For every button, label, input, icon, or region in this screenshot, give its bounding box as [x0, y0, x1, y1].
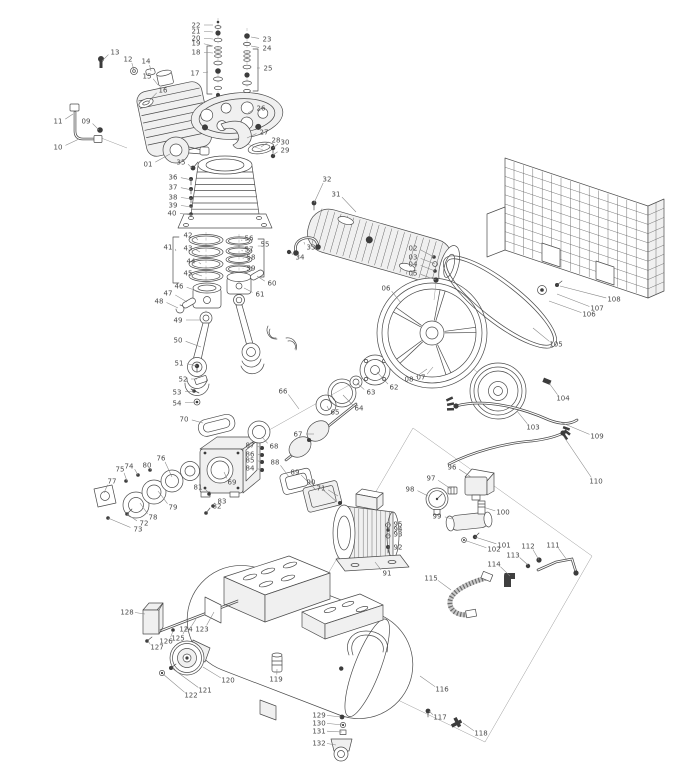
part-label-09: 09: [82, 117, 91, 125]
part-label-49: 49: [174, 316, 183, 324]
part-bolt-32: [312, 201, 317, 210]
part-label-83: 83: [218, 497, 227, 505]
part-label-42: 42: [184, 231, 193, 239]
part-label-46: 46: [175, 282, 184, 290]
part-leader-129: [327, 715, 341, 717]
part-leader-104: [549, 383, 558, 395]
part-label-74: 74: [125, 462, 134, 470]
part-leader-115: [438, 580, 451, 590]
part-leader-20: [204, 38, 213, 39]
part-label-02: 02: [409, 244, 418, 252]
diagram-canvas: 0102030405060708091011121314151617181920…: [0, 0, 686, 768]
part-label-28: 28: [272, 136, 281, 144]
part-label-100: 100: [496, 508, 509, 516]
part-motor-pulley-103: [470, 363, 551, 419]
part-leader-106: [549, 301, 581, 313]
part-leader-31: [342, 197, 356, 212]
part-label-123: 123: [195, 625, 208, 633]
part-label-36: 36: [169, 173, 178, 181]
part-leader-23: [251, 37, 259, 38]
part-label-79: 79: [169, 503, 178, 511]
part-leader-42: [195, 237, 198, 240]
part-leader-47: [175, 295, 187, 302]
part-label-99: 99: [433, 512, 442, 520]
part-bearing-68: [248, 421, 270, 443]
part-leader-98: [417, 491, 428, 496]
part-label-55: 55: [261, 240, 270, 248]
part-label-29: 29: [281, 146, 290, 154]
part-label-62: 62: [390, 383, 399, 391]
part-label-01: 01: [144, 160, 153, 168]
part-label-88: 88: [271, 458, 280, 466]
part-label-44: 44: [187, 257, 196, 265]
part-leader-110: [564, 437, 591, 477]
part-leader-34: [291, 252, 293, 255]
part-label-89: 89: [291, 468, 300, 476]
part-label-06: 06: [382, 284, 391, 292]
part-label-11: 11: [54, 117, 63, 125]
part-leader-29: [273, 152, 278, 155]
bracket-41: [173, 237, 179, 283]
part-label-81: 81: [194, 483, 203, 491]
part-label-69: 69: [228, 478, 237, 486]
part-label-14: 14: [142, 57, 151, 65]
part-label-31: 31: [332, 190, 341, 198]
part-wheel-120: [170, 641, 204, 675]
part-label-109: 109: [590, 432, 603, 440]
part-label-130: 130: [312, 719, 325, 727]
part-leader-32: [314, 183, 323, 203]
part-label-15: 15: [143, 72, 152, 80]
part-label-33: 33: [307, 243, 316, 251]
part-label-51: 51: [175, 359, 184, 367]
part-leader-88: [280, 465, 289, 477]
part-label-110: 110: [589, 477, 602, 485]
part-leader-107: [557, 294, 589, 307]
part-label-59: 59: [247, 264, 256, 272]
part-manifold-99: [445, 512, 492, 532]
part-connecting-rod-1: [185, 312, 212, 396]
part-leader-97: [438, 480, 451, 489]
part-label-71: 71: [317, 484, 326, 492]
part-label-98: 98: [406, 485, 415, 493]
part-label-67: 67: [294, 430, 303, 438]
part-label-34: 34: [296, 253, 305, 261]
part-leader-112: [533, 550, 539, 560]
part-label-87: 87: [246, 441, 255, 449]
part-leader-82: [207, 508, 210, 512]
part-label-129: 129: [312, 711, 325, 719]
part-cover-ring-cluster: [94, 462, 200, 520]
part-label-132: 132: [312, 739, 325, 747]
part-piston-large-46: [193, 283, 221, 308]
part-label-41: 41: [164, 243, 173, 251]
part-label-127: 127: [150, 643, 163, 651]
part-label-118: 118: [474, 729, 487, 737]
part-leader-102: [464, 540, 486, 548]
part-label-102: 102: [487, 545, 500, 553]
part-label-86: 86: [246, 450, 255, 458]
part-label-12: 12: [124, 55, 133, 63]
part-flywheel-06: [377, 278, 487, 388]
part-label-22: 22: [192, 21, 201, 29]
part-leader-74: [135, 469, 138, 475]
part-label-52: 52: [179, 375, 188, 383]
part-connecting-rod-2: [234, 295, 265, 374]
part-leader-41: [175, 249, 176, 251]
part-label-125: 125: [171, 634, 184, 642]
part-label-92: 92: [394, 543, 403, 551]
part-label-43: 43: [184, 244, 193, 252]
part-label-16: 16: [159, 86, 168, 94]
part-label-116: 116: [435, 685, 449, 693]
part-label-96: 96: [448, 463, 457, 471]
part-leader-101: [475, 537, 496, 544]
part-elbow-114: [504, 573, 515, 587]
part-leader-118: [463, 723, 474, 731]
part-label-121: 121: [198, 686, 211, 694]
washer-12: [131, 68, 138, 75]
part-label-80: 80: [143, 461, 152, 469]
part-bearing-shells: [267, 326, 297, 350]
part-leader-113: [520, 557, 528, 565]
part-axle-bolts-121-122: [159, 664, 176, 676]
part-leader-111: [558, 548, 567, 560]
part-leader-15: [153, 79, 158, 85]
part-label-77: 77: [108, 477, 117, 485]
part-leader-09: [93, 124, 99, 130]
part-leader-73: [108, 518, 130, 527]
part-label-107: 107: [590, 304, 603, 312]
part-label-84: 84: [246, 464, 255, 472]
part-label-53: 53: [173, 388, 182, 396]
part-leader-108: [560, 286, 606, 298]
part-label-54: 54: [173, 399, 182, 407]
compressor-exploded-diagram: 0102030405060708091011121314151617181920…: [0, 0, 686, 768]
part-case-bolts-84-87: [260, 446, 264, 472]
part-label-111: 111: [546, 541, 559, 549]
part-label-23: 23: [263, 35, 272, 43]
filter-bolt-13: [98, 56, 104, 68]
part-fitting-35: [191, 162, 198, 170]
part-leader-43: [196, 249, 200, 252]
part-label-108: 108: [607, 295, 620, 303]
part-leader-57: [241, 250, 243, 251]
part-leader-35: [188, 164, 192, 168]
part-ring-stack-left: [173, 235, 223, 284]
part-label-60: 60: [268, 279, 277, 287]
part-pressure-switch-96: [465, 469, 494, 500]
part-label-18: 18: [192, 48, 201, 56]
part-label-122: 122: [184, 691, 197, 699]
part-label-70: 70: [180, 415, 189, 423]
part-label-04: 04: [409, 260, 418, 268]
part-label-115: 115: [424, 574, 437, 582]
part-valve-stack-left: [207, 21, 223, 97]
part-label-38: 38: [169, 193, 178, 201]
part-label-114: 114: [487, 560, 501, 568]
part-label-65: 65: [331, 408, 340, 416]
part-leader-45: [196, 274, 202, 276]
part-bolt-34: [287, 250, 291, 254]
part-label-120: 120: [221, 676, 234, 684]
part-label-26: 26: [257, 104, 266, 112]
part-label-104: 104: [556, 394, 570, 402]
part-label-95: 95: [394, 520, 403, 528]
part-leader-103: [517, 411, 527, 424]
part-label-91: 91: [383, 569, 392, 577]
part-label-48: 48: [155, 297, 164, 305]
part-label-56: 56: [245, 234, 254, 242]
part-label-07: 07: [417, 373, 426, 381]
part-label-30: 30: [281, 138, 290, 146]
part-label-27: 27: [260, 128, 269, 136]
part-label-32: 32: [323, 175, 332, 183]
part-nut-113: [526, 564, 530, 568]
part-label-10: 10: [54, 143, 63, 151]
part-label-35: 35: [177, 158, 186, 166]
tank-leg: [260, 700, 276, 720]
part-leader-10: [65, 139, 79, 145]
part-label-40: 40: [168, 209, 177, 217]
part-label-57: 57: [245, 245, 254, 253]
part-label-25: 25: [264, 64, 273, 72]
part-leader-44: [199, 262, 201, 264]
part-key-104: [542, 378, 551, 385]
part-leader-11: [65, 114, 73, 119]
part-flex-hose-115: [450, 571, 493, 617]
bracket-25: [253, 49, 258, 91]
part-pressure-gauge: [426, 488, 448, 515]
part-leader-21: [204, 31, 213, 32]
part-label-68: 68: [270, 442, 279, 450]
part-leader-105: [533, 328, 549, 341]
part-label-97: 97: [427, 474, 436, 482]
part-label-17: 17: [191, 69, 200, 77]
part-circlip-48: [176, 305, 184, 313]
part-valve-stack-right: [243, 33, 258, 92]
part-label-37: 37: [169, 183, 178, 191]
part-label-124: 124: [179, 625, 193, 633]
part-label-61: 61: [256, 290, 265, 298]
part-label-63: 63: [367, 388, 376, 396]
part-label-103: 103: [526, 423, 539, 431]
part-label-24: 24: [263, 44, 272, 52]
part-label-113: 113: [506, 551, 519, 559]
part-label-47: 47: [164, 289, 173, 297]
part-label-112: 112: [521, 542, 534, 550]
part-label-45: 45: [184, 269, 193, 277]
part-leader-64: [343, 395, 353, 405]
part-piston-small-61: [227, 273, 251, 295]
part-power-cord-110: [449, 426, 571, 464]
part-label-08: 08: [405, 375, 414, 383]
part-label-66: 66: [279, 387, 288, 395]
part-leader-122: [163, 674, 185, 692]
part-label-39: 39: [169, 201, 178, 209]
part-caster-assembly: [331, 715, 352, 761]
part-label-05: 05: [409, 269, 418, 277]
part-label-76: 76: [157, 454, 166, 462]
part-label-50: 50: [174, 336, 183, 344]
part-label-119: 119: [269, 675, 282, 683]
part-pipe-111: [526, 557, 579, 575]
part-leader-116: [420, 676, 435, 687]
part-leader-48: [167, 303, 178, 308]
part-label-105: 105: [549, 340, 562, 348]
part-label-73: 73: [134, 525, 143, 533]
part-label-13: 13: [111, 48, 120, 56]
part-belt-guard: [487, 158, 664, 298]
part-muffler-31: [303, 204, 464, 289]
part-label-20: 20: [192, 34, 201, 42]
part-leader-66: [288, 394, 299, 409]
part-leader-18: [204, 52, 213, 53]
part-gasket-70: [197, 413, 237, 438]
part-leader-24: [251, 46, 259, 47]
part-label-131: 131: [312, 727, 325, 735]
part-label-78: 78: [149, 513, 158, 521]
part-label-117: 117: [433, 713, 446, 721]
part-label-64: 64: [355, 404, 364, 412]
part-label-128: 128: [120, 608, 133, 616]
part-label-90: 90: [307, 478, 316, 486]
part-label-75: 75: [116, 465, 125, 473]
part-label-58: 58: [247, 253, 256, 261]
bracket-17: [207, 46, 212, 94]
